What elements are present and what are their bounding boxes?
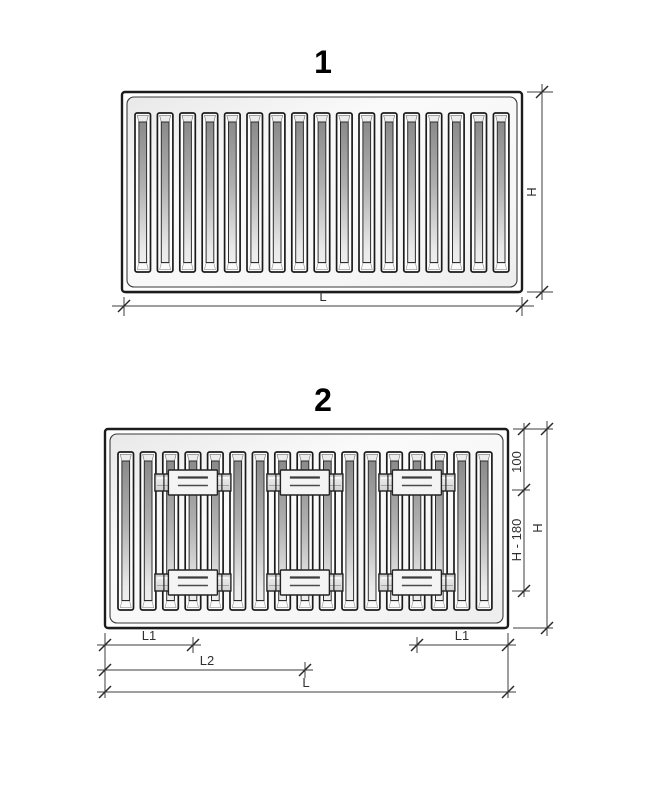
fin-bottom-bevel	[451, 263, 462, 270]
fin-bottom-bevel	[389, 601, 400, 608]
fin-bottom-bevel	[384, 263, 395, 270]
fin-channel	[144, 461, 152, 601]
figure-1-length-label: L	[319, 289, 326, 304]
fin-channel	[122, 461, 130, 601]
fin-bottom-bevel	[406, 263, 417, 270]
figure-2-height-label: H	[530, 523, 545, 532]
fin-channel	[161, 122, 169, 263]
fin-channel	[453, 122, 461, 263]
fin-channel	[430, 122, 438, 263]
fin-channel	[318, 122, 326, 263]
radiator-fin	[225, 113, 241, 272]
fin-channel	[206, 122, 214, 263]
fin-top-bevel	[137, 115, 148, 122]
fin-top-bevel	[204, 115, 215, 122]
fin-bottom-bevel	[204, 263, 215, 270]
fin-channel	[229, 122, 237, 263]
radiator-fin	[118, 452, 134, 610]
fin-top-bevel	[294, 115, 305, 122]
figure-1: 1 H L	[112, 44, 553, 316]
radiator-fin	[314, 113, 330, 272]
fin-top-bevel	[210, 454, 221, 461]
mounting-bracket	[155, 570, 231, 595]
bracket-plate	[280, 470, 329, 495]
radiator-fin	[252, 452, 268, 610]
fin-bottom-bevel	[456, 601, 467, 608]
radiator-fin	[337, 113, 353, 272]
fin-top-bevel	[496, 115, 507, 122]
figure-1-number: 1	[314, 44, 332, 80]
fin-bottom-bevel	[322, 601, 333, 608]
radiator-fin	[247, 113, 263, 272]
fin-top-bevel	[406, 115, 417, 122]
radiator-fin	[449, 113, 465, 272]
figure-2-length-label: L	[302, 675, 309, 690]
fin-bottom-bevel	[339, 263, 350, 270]
figure-1-radiator-panel	[122, 92, 522, 294]
fin-bottom-bevel	[361, 263, 372, 270]
fin-top-bevel	[389, 454, 400, 461]
mounting-bracket	[267, 470, 343, 495]
fin-top-bevel	[361, 115, 372, 122]
fin-bottom-bevel	[277, 601, 288, 608]
fin-channel	[475, 122, 483, 263]
radiator-fin	[471, 113, 487, 272]
mounting-bracket	[267, 570, 343, 595]
bracket-plate	[168, 470, 217, 495]
figure-2-dim-right: 100 H - 180 H	[509, 421, 553, 636]
radiator-fin	[292, 113, 308, 272]
fin-channel	[139, 122, 147, 263]
fin-top-bevel	[434, 454, 445, 461]
bracket-plate	[392, 570, 441, 595]
figure-2-dim-bottom: L1 L1 L2 L	[97, 628, 516, 698]
fin-channel	[296, 122, 304, 263]
radiator-fin	[454, 452, 470, 610]
fin-top-bevel	[411, 454, 422, 461]
figure-2-top-offset-label: 100	[509, 451, 524, 473]
fin-top-bevel	[451, 115, 462, 122]
bracket-plate	[168, 570, 217, 595]
fin-top-bevel	[227, 115, 238, 122]
bracket-plate	[280, 570, 329, 595]
fin-top-bevel	[160, 115, 171, 122]
fin-bottom-bevel	[299, 601, 310, 608]
fin-top-bevel	[344, 454, 355, 461]
fin-channel	[458, 461, 466, 601]
fin-top-bevel	[120, 454, 131, 461]
fin-channel	[346, 461, 354, 601]
radiator-fin	[381, 113, 397, 272]
fin-top-bevel	[299, 454, 310, 461]
radiator-fin	[364, 452, 380, 610]
fin-bottom-bevel	[227, 263, 238, 270]
fin-channel	[480, 461, 488, 601]
fin-top-bevel	[165, 454, 176, 461]
fin-bottom-bevel	[137, 263, 148, 270]
fin-channel	[368, 461, 376, 601]
fin-top-bevel	[479, 454, 490, 461]
fin-bottom-bevel	[182, 263, 193, 270]
radiator-fin	[269, 113, 285, 272]
radiator-fin	[493, 113, 509, 272]
fin-top-bevel	[384, 115, 395, 122]
fin-channel	[234, 461, 242, 601]
fin-bottom-bevel	[249, 263, 260, 270]
figure-2-number: 2	[314, 382, 332, 418]
radiator-technical-drawing: 1 H L 2	[0, 0, 650, 800]
fin-bottom-bevel	[143, 601, 154, 608]
fin-channel	[363, 122, 371, 263]
radiator-fin	[202, 113, 218, 272]
fin-bottom-bevel	[165, 601, 176, 608]
figure-2-L2-label: L2	[200, 653, 214, 668]
bracket-plate	[392, 470, 441, 495]
fin-bottom-bevel	[428, 263, 439, 270]
fin-top-bevel	[277, 454, 288, 461]
fin-top-bevel	[339, 115, 350, 122]
fin-top-bevel	[316, 115, 327, 122]
radiator-fin	[135, 113, 151, 272]
fin-bottom-bevel	[255, 601, 266, 608]
fin-channel	[184, 122, 192, 263]
fin-bottom-bevel	[434, 601, 445, 608]
fin-bottom-bevel	[316, 263, 327, 270]
fin-bottom-bevel	[294, 263, 305, 270]
fin-bottom-bevel	[344, 601, 355, 608]
fin-top-bevel	[367, 454, 378, 461]
fin-bottom-bevel	[120, 601, 131, 608]
fin-bottom-bevel	[232, 601, 243, 608]
figure-2-L1-left-label: L1	[142, 628, 156, 643]
fin-top-bevel	[322, 454, 333, 461]
fin-top-bevel	[187, 454, 198, 461]
fin-top-bevel	[456, 454, 467, 461]
radiator-fin	[157, 113, 173, 272]
fin-bottom-bevel	[187, 601, 198, 608]
fin-top-bevel	[249, 115, 260, 122]
mounting-bracket	[379, 470, 455, 495]
mounting-bracket	[155, 470, 231, 495]
fin-bottom-bevel	[479, 601, 490, 608]
fin-channel	[256, 461, 264, 601]
fin-top-bevel	[182, 115, 193, 122]
figure-2-L1-right-label: L1	[455, 628, 469, 643]
fin-top-bevel	[143, 454, 154, 461]
mounting-bracket	[379, 570, 455, 595]
radiator-fin	[426, 113, 442, 272]
fin-channel	[408, 122, 416, 263]
fin-top-bevel	[473, 115, 484, 122]
fin-top-bevel	[272, 115, 283, 122]
fin-channel	[385, 122, 393, 263]
fin-top-bevel	[428, 115, 439, 122]
fin-bottom-bevel	[272, 263, 283, 270]
radiator-fin	[476, 452, 492, 610]
fin-channel	[273, 122, 281, 263]
fin-bottom-bevel	[411, 601, 422, 608]
radiator-fin	[180, 113, 196, 272]
fin-channel	[497, 122, 505, 263]
figure-2-radiator-panel	[105, 429, 508, 630]
radiator-fin	[230, 452, 246, 610]
fin-channel	[341, 122, 349, 263]
figure-2: 2 100 H - 180 H	[97, 382, 553, 698]
fin-bottom-bevel	[160, 263, 171, 270]
fin-bottom-bevel	[473, 263, 484, 270]
fin-bottom-bevel	[496, 263, 507, 270]
fin-top-bevel	[232, 454, 243, 461]
fin-bottom-bevel	[210, 601, 221, 608]
figure-1-height-label: H	[524, 187, 539, 196]
drawing-canvas: 1 H L 2	[0, 0, 650, 800]
radiator-fin	[404, 113, 420, 272]
fin-top-bevel	[255, 454, 266, 461]
figure-2-middle-span-label: H - 180	[509, 519, 524, 562]
radiator-fin	[342, 452, 358, 610]
radiator-fin	[359, 113, 375, 272]
radiator-fin	[140, 452, 156, 610]
figure-1-fins	[135, 113, 509, 272]
fin-channel	[251, 122, 259, 263]
fin-bottom-bevel	[367, 601, 378, 608]
figure-1-dim-height: H	[524, 84, 553, 300]
